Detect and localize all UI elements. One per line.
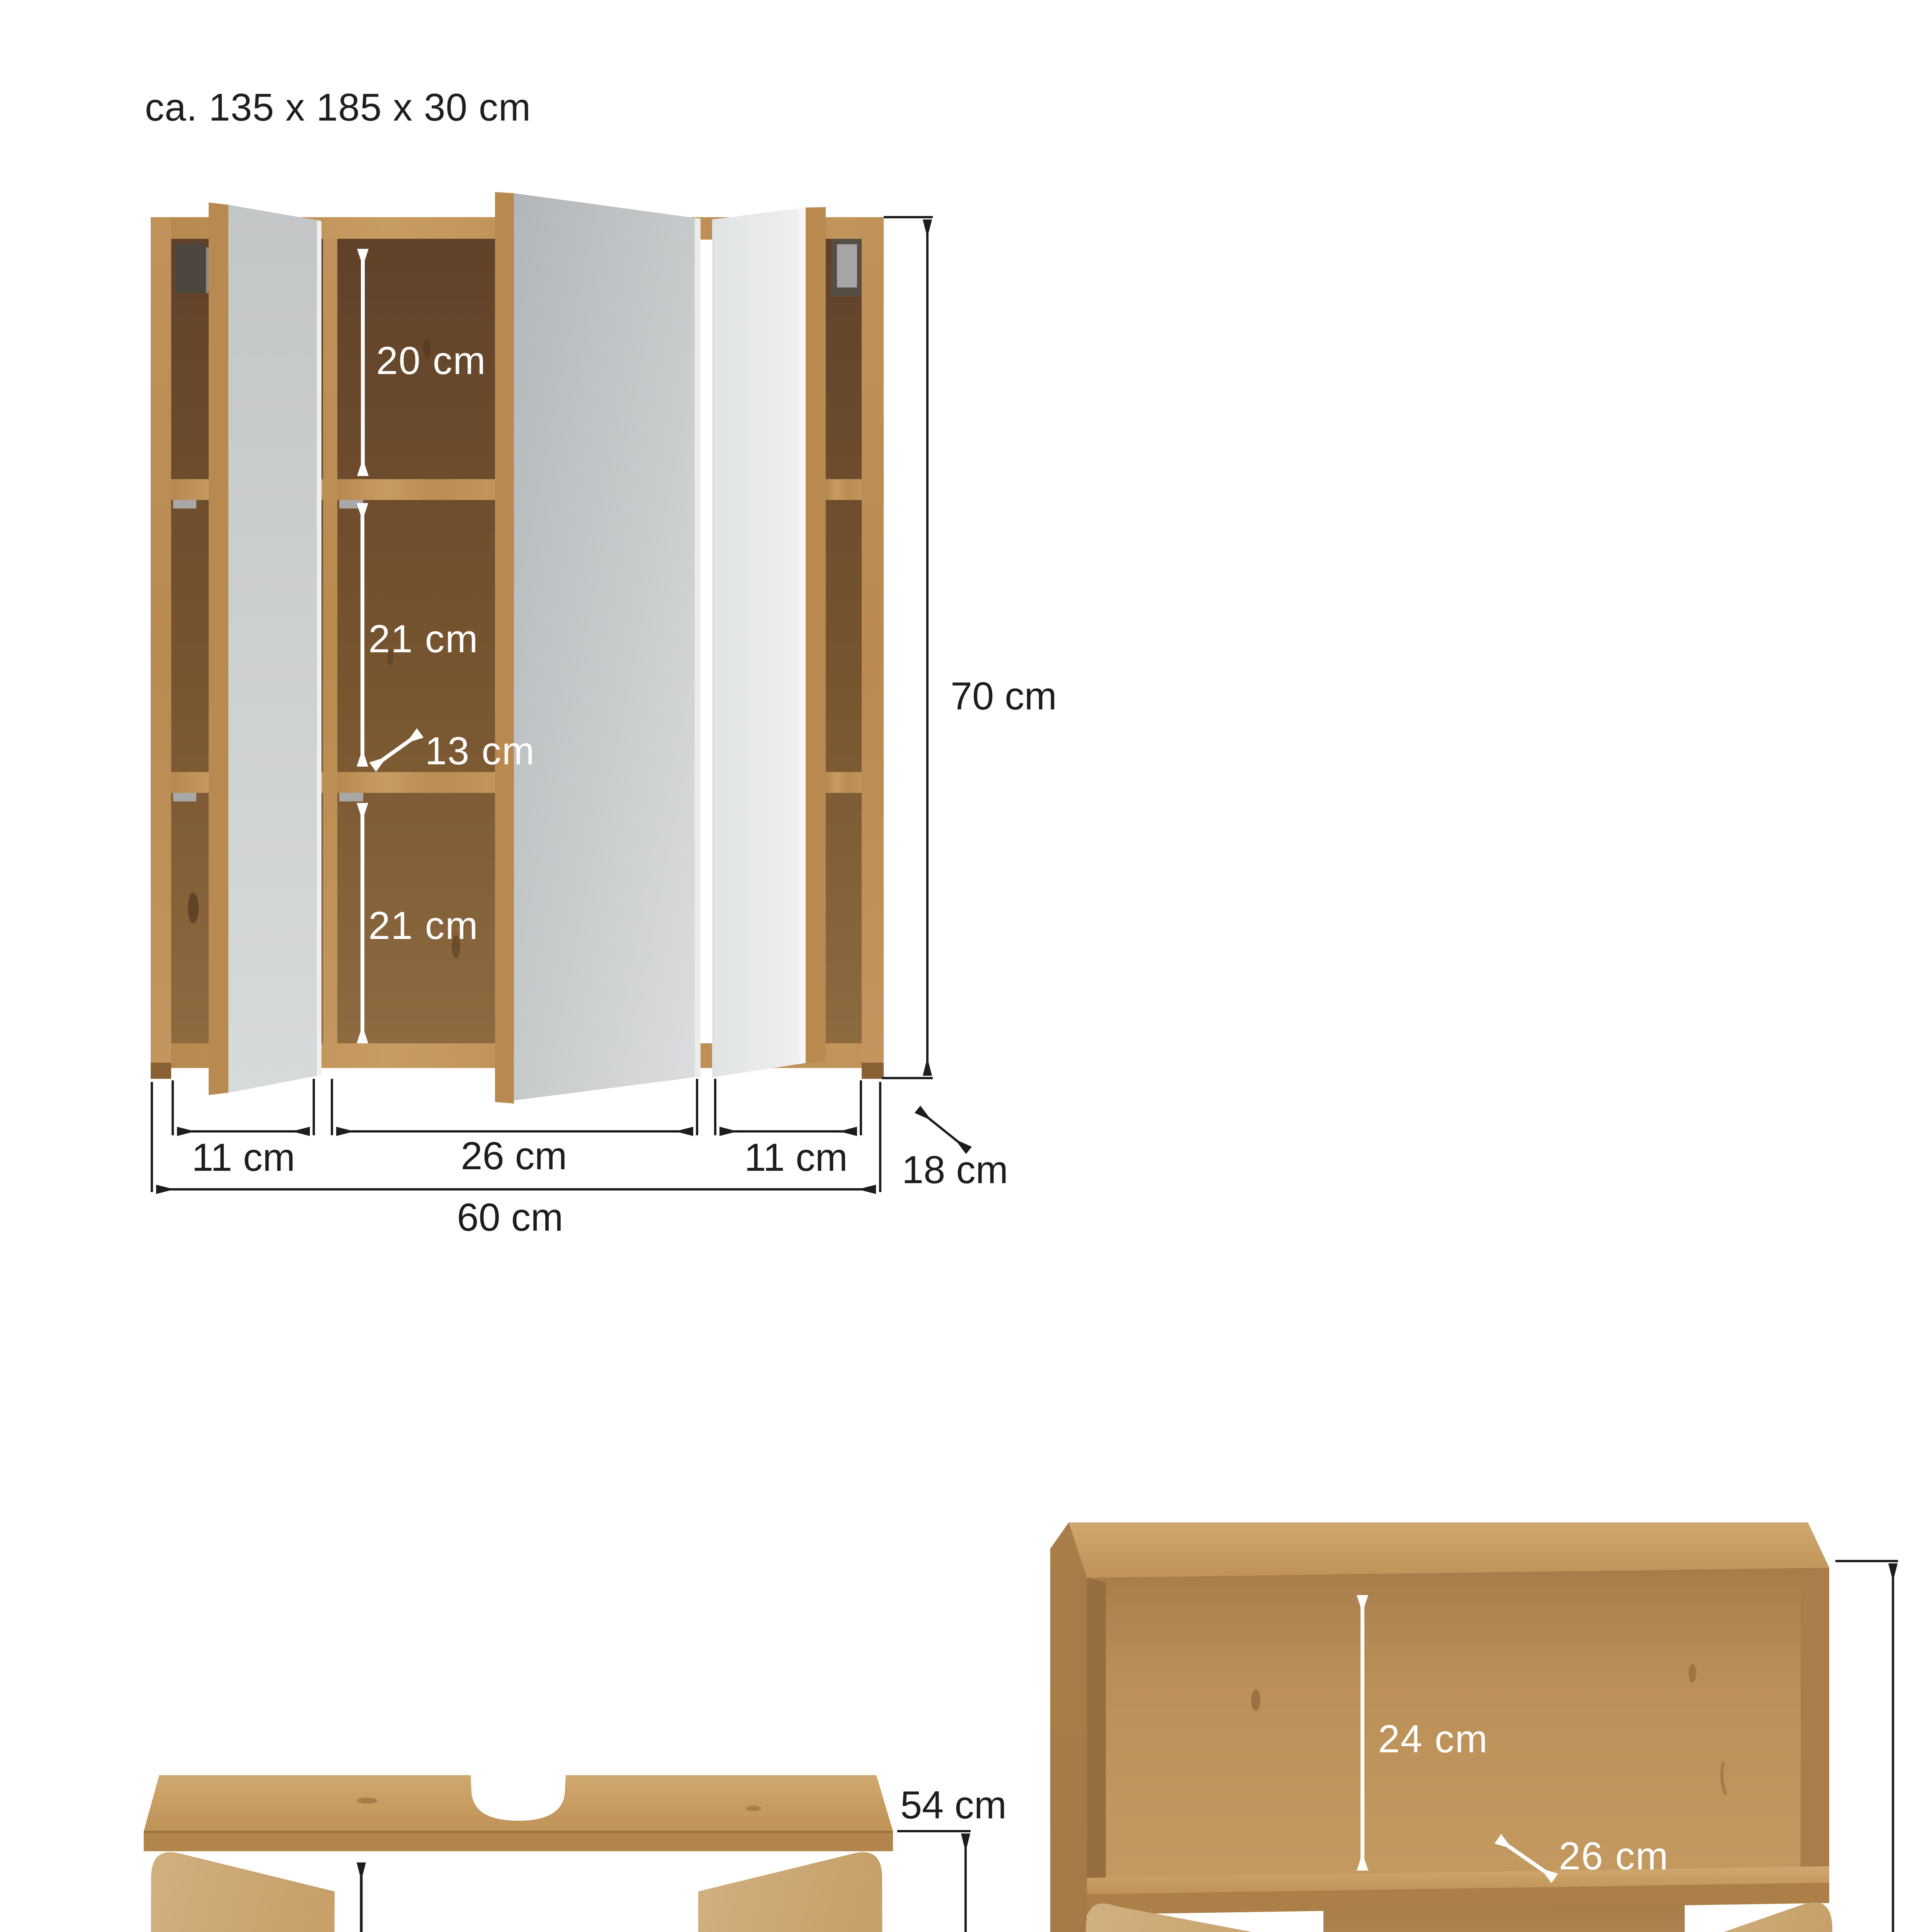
svg-text:21 cm: 21 cm (368, 904, 478, 947)
svg-text:70 cm: 70 cm (951, 675, 1057, 718)
svg-text:54 cm: 54 cm (900, 1784, 1007, 1827)
svg-text:20 cm: 20 cm (376, 339, 486, 383)
svg-text:24 cm: 24 cm (1378, 1718, 1488, 1761)
svg-text:13 cm: 13 cm (425, 730, 535, 773)
svg-text:11 cm: 11 cm (192, 1136, 295, 1179)
svg-text:26 cm: 26 cm (461, 1134, 567, 1178)
svg-text:11 cm: 11 cm (744, 1136, 848, 1179)
svg-text:ca. 135 x 185 x 30 cm: ca. 135 x 185 x 30 cm (145, 86, 531, 129)
svg-text:60 cm: 60 cm (457, 1196, 563, 1239)
svg-text:18 cm: 18 cm (902, 1148, 1008, 1192)
svg-text:21 cm: 21 cm (368, 617, 478, 661)
svg-text:26 cm: 26 cm (1559, 1835, 1669, 1878)
